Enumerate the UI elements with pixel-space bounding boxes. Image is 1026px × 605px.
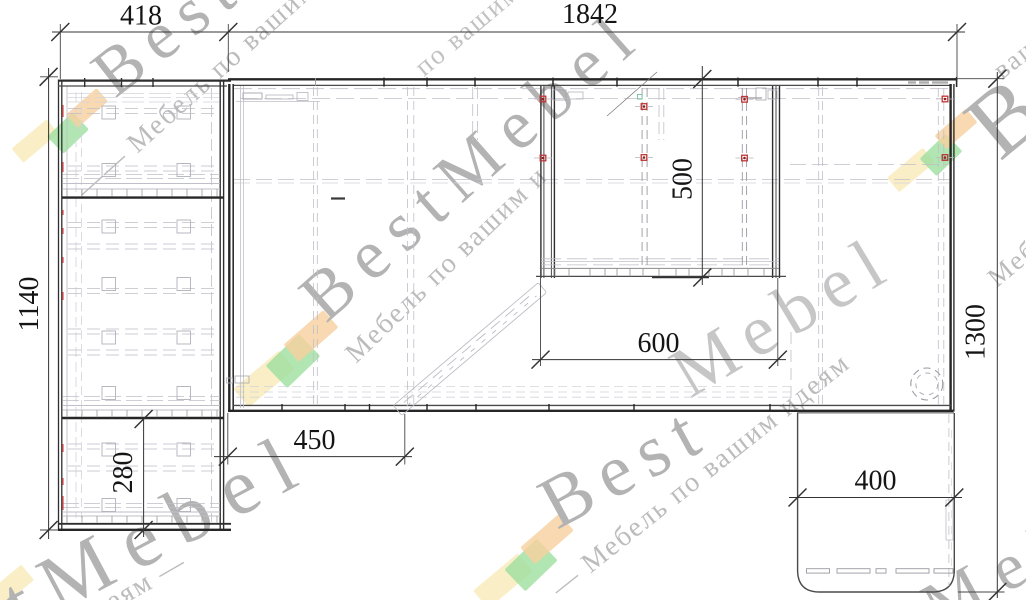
svg-text:1842: 1842 — [562, 0, 618, 30]
svg-text:1300: 1300 — [961, 304, 992, 360]
svg-text:500: 500 — [668, 158, 699, 200]
svg-text:400: 400 — [855, 466, 897, 497]
svg-text:1140: 1140 — [14, 277, 45, 332]
svg-text:600: 600 — [638, 328, 680, 359]
svg-text:418: 418 — [120, 1, 162, 32]
svg-text:450: 450 — [294, 425, 336, 456]
svg-text:280: 280 — [108, 452, 139, 494]
